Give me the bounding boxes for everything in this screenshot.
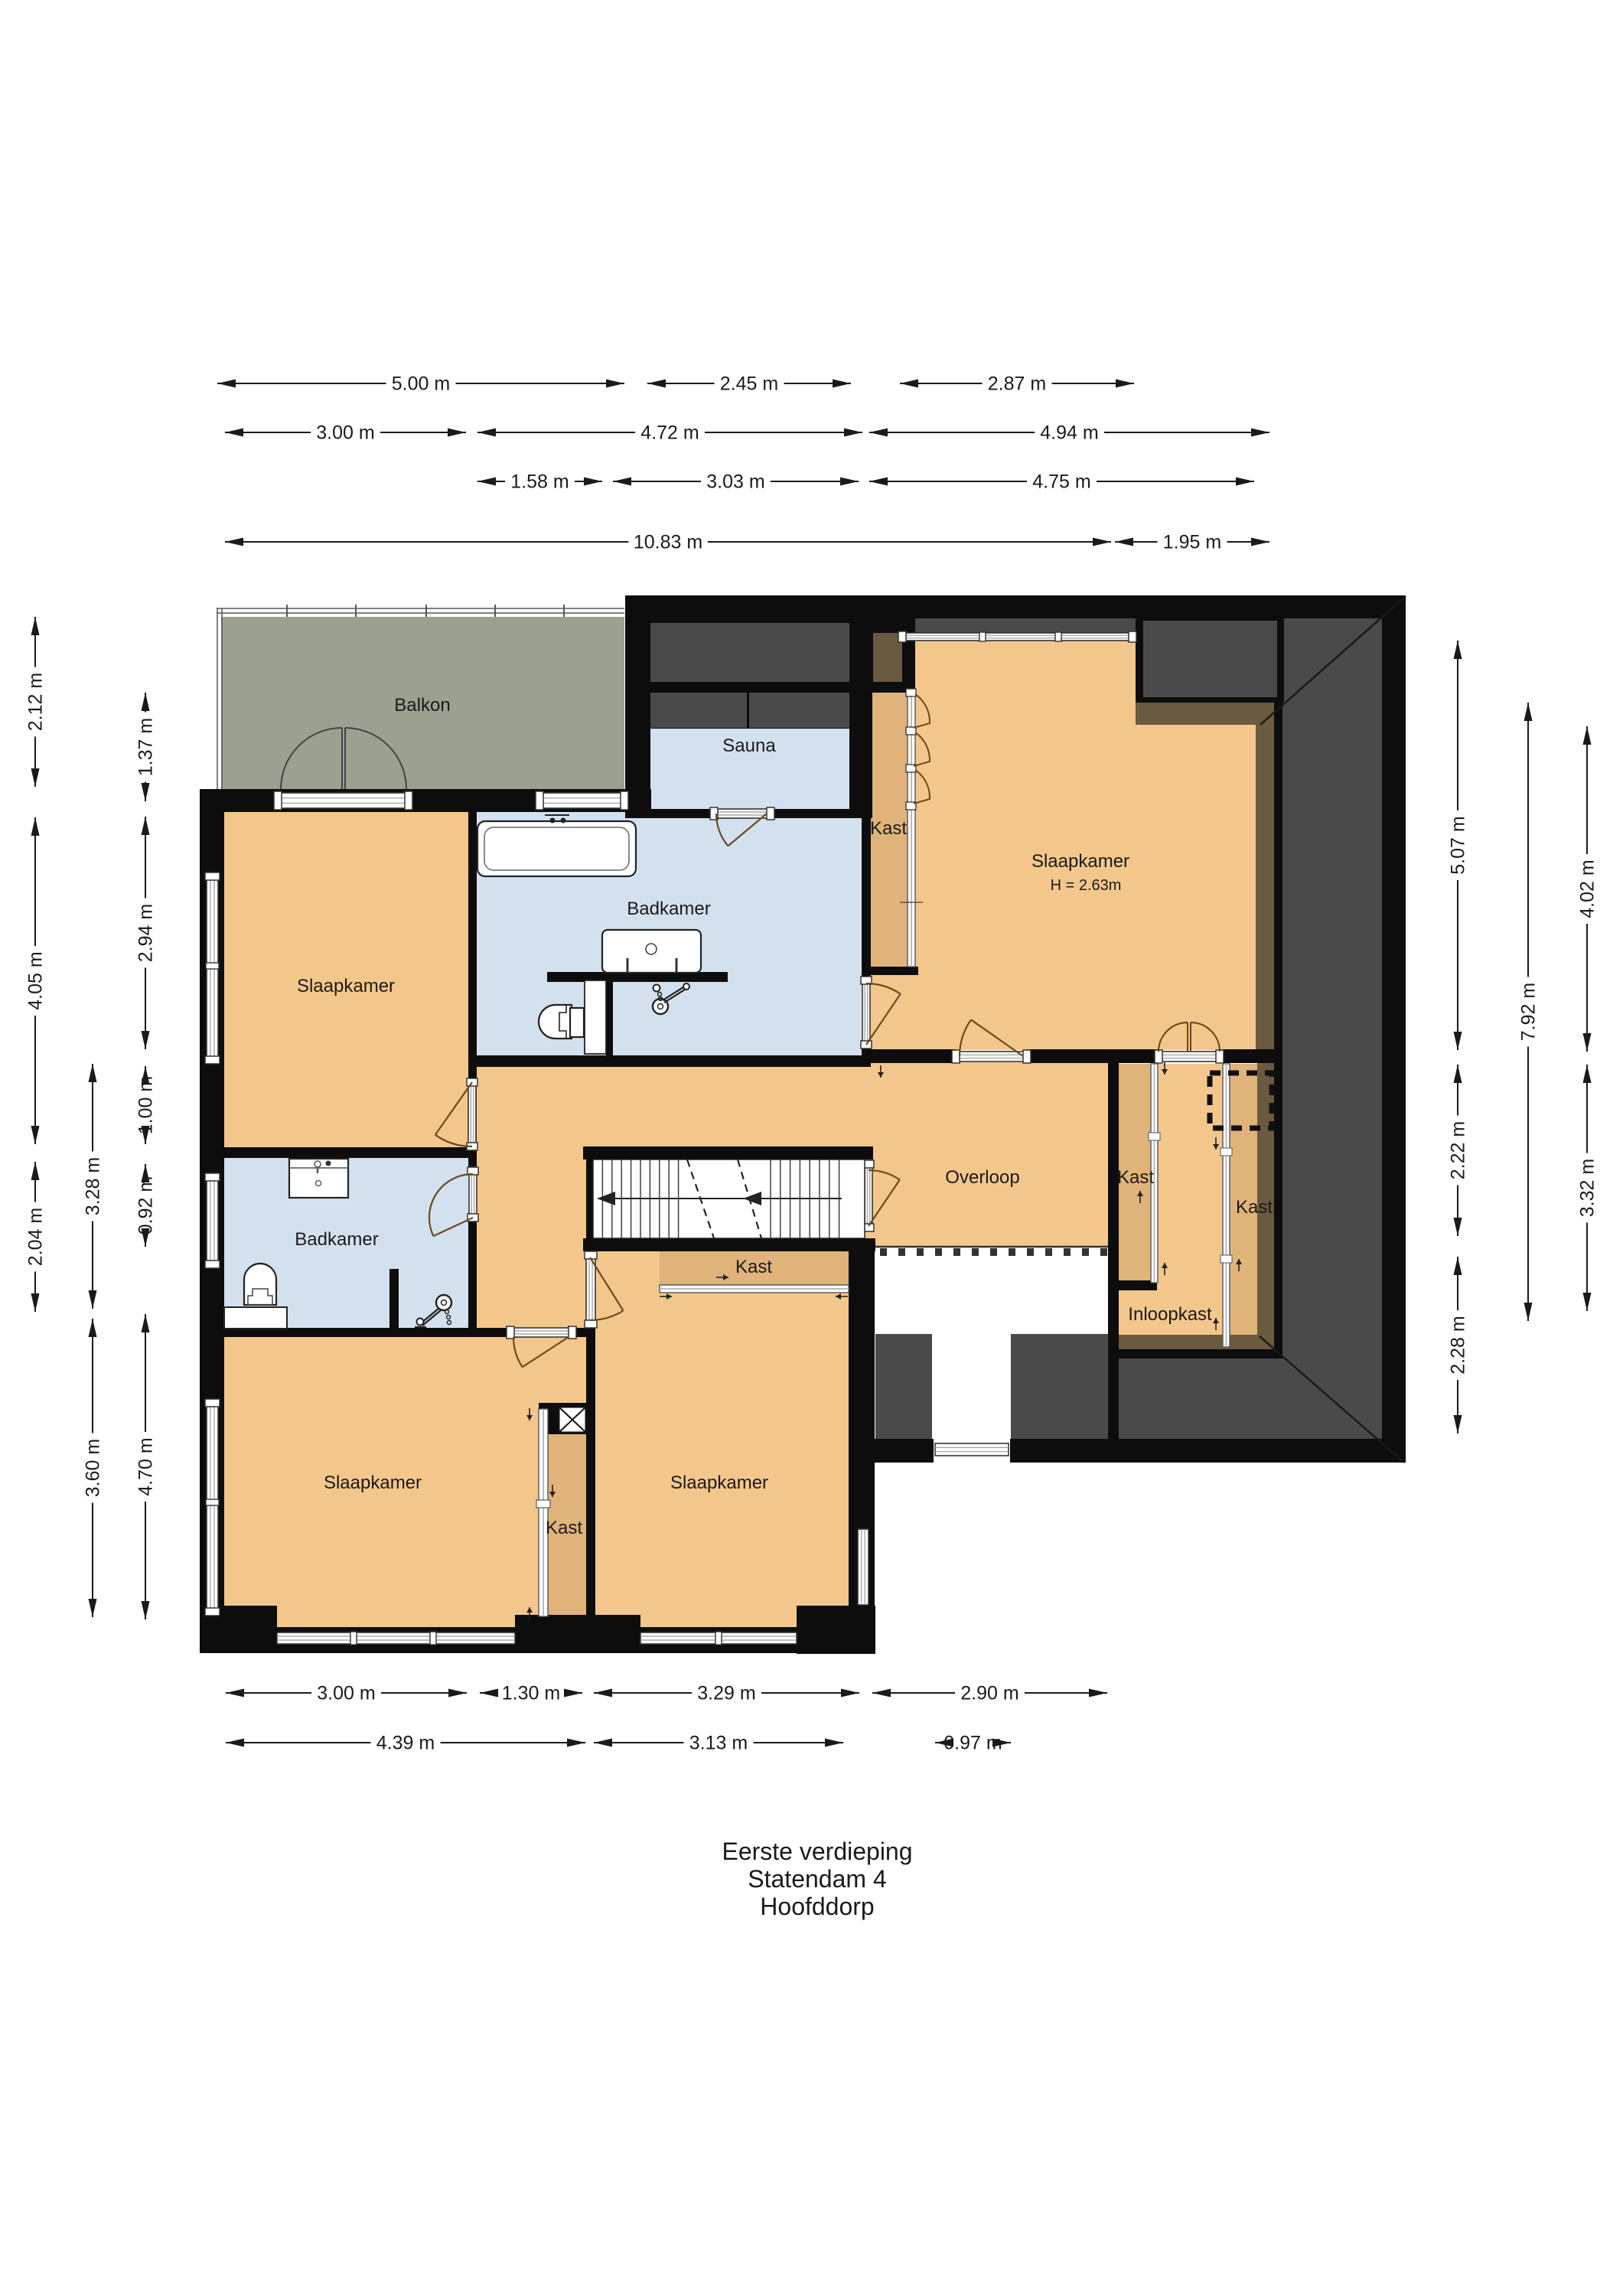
svg-text:Eerste verdieping: Eerste verdieping — [722, 1838, 912, 1865]
svg-text:4.70 m: 4.70 m — [135, 1437, 157, 1495]
svg-text:0.92 m: 0.92 m — [135, 1176, 157, 1234]
svg-text:Sauna: Sauna — [722, 735, 776, 756]
svg-text:H = 2.63m: H = 2.63m — [1051, 877, 1122, 894]
svg-text:Slaapkamer: Slaapkamer — [324, 1473, 422, 1493]
svg-text:3.32 m: 3.32 m — [1577, 1159, 1599, 1217]
svg-text:3.00 m: 3.00 m — [316, 422, 374, 444]
svg-text:Kast: Kast — [1236, 1197, 1273, 1218]
svg-text:4.02 m: 4.02 m — [1577, 859, 1599, 918]
svg-text:Overloop: Overloop — [945, 1167, 1019, 1188]
svg-text:Badkamer: Badkamer — [295, 1229, 378, 1250]
svg-text:Slaapkamer: Slaapkamer — [670, 1473, 768, 1493]
svg-text:5.07 m: 5.07 m — [1448, 816, 1469, 874]
svg-text:0.97 m: 0.97 m — [943, 1733, 1002, 1754]
svg-text:2.90 m: 2.90 m — [960, 1683, 1018, 1704]
svg-text:Kast: Kast — [1117, 1167, 1154, 1188]
svg-text:2.12 m: 2.12 m — [25, 673, 47, 731]
svg-text:4.05 m: 4.05 m — [25, 951, 47, 1009]
svg-text:Statendam 4: Statendam 4 — [748, 1865, 886, 1893]
svg-text:Slaapkamer: Slaapkamer — [297, 976, 395, 996]
svg-text:5.00 m: 5.00 m — [392, 373, 450, 395]
svg-text:Hoofddorp: Hoofddorp — [760, 1893, 874, 1920]
svg-text:Balkon: Balkon — [394, 695, 450, 716]
svg-text:2.94 m: 2.94 m — [135, 904, 157, 962]
svg-text:3.03 m: 3.03 m — [706, 471, 764, 493]
svg-text:Badkamer: Badkamer — [627, 899, 710, 919]
svg-text:1.95 m: 1.95 m — [1163, 532, 1221, 553]
svg-text:4.72 m: 4.72 m — [640, 422, 699, 444]
svg-text:4.94 m: 4.94 m — [1040, 422, 1098, 444]
svg-text:3.13 m: 3.13 m — [689, 1733, 748, 1754]
svg-text:4.75 m: 4.75 m — [1032, 471, 1090, 493]
svg-text:Kast: Kast — [546, 1518, 582, 1538]
svg-text:2.45 m: 2.45 m — [720, 373, 778, 395]
svg-text:1.37 m: 1.37 m — [135, 718, 157, 776]
svg-text:Kast: Kast — [870, 818, 907, 839]
svg-text:Kast: Kast — [735, 1257, 772, 1277]
svg-text:2.04 m: 2.04 m — [25, 1208, 47, 1266]
svg-text:1.00 m: 1.00 m — [135, 1076, 157, 1134]
svg-text:3.29 m: 3.29 m — [697, 1683, 755, 1704]
svg-text:10.83 m: 10.83 m — [634, 532, 702, 553]
svg-text:1.58 m: 1.58 m — [510, 471, 569, 493]
svg-text:3.00 m: 3.00 m — [317, 1683, 375, 1704]
svg-text:2.87 m: 2.87 m — [988, 373, 1046, 395]
svg-text:Inloopkast: Inloopkast — [1128, 1304, 1212, 1325]
svg-text:2.22 m: 2.22 m — [1448, 1121, 1469, 1179]
svg-text:1.30 m: 1.30 m — [502, 1683, 560, 1704]
svg-text:3.28 m: 3.28 m — [83, 1157, 104, 1215]
svg-text:4.39 m: 4.39 m — [376, 1733, 435, 1754]
svg-text:2.28 m: 2.28 m — [1448, 1316, 1469, 1374]
svg-text:7.92 m: 7.92 m — [1518, 983, 1540, 1041]
svg-text:3.60 m: 3.60 m — [83, 1439, 104, 1497]
svg-text:Slaapkamer: Slaapkamer — [1031, 851, 1129, 872]
